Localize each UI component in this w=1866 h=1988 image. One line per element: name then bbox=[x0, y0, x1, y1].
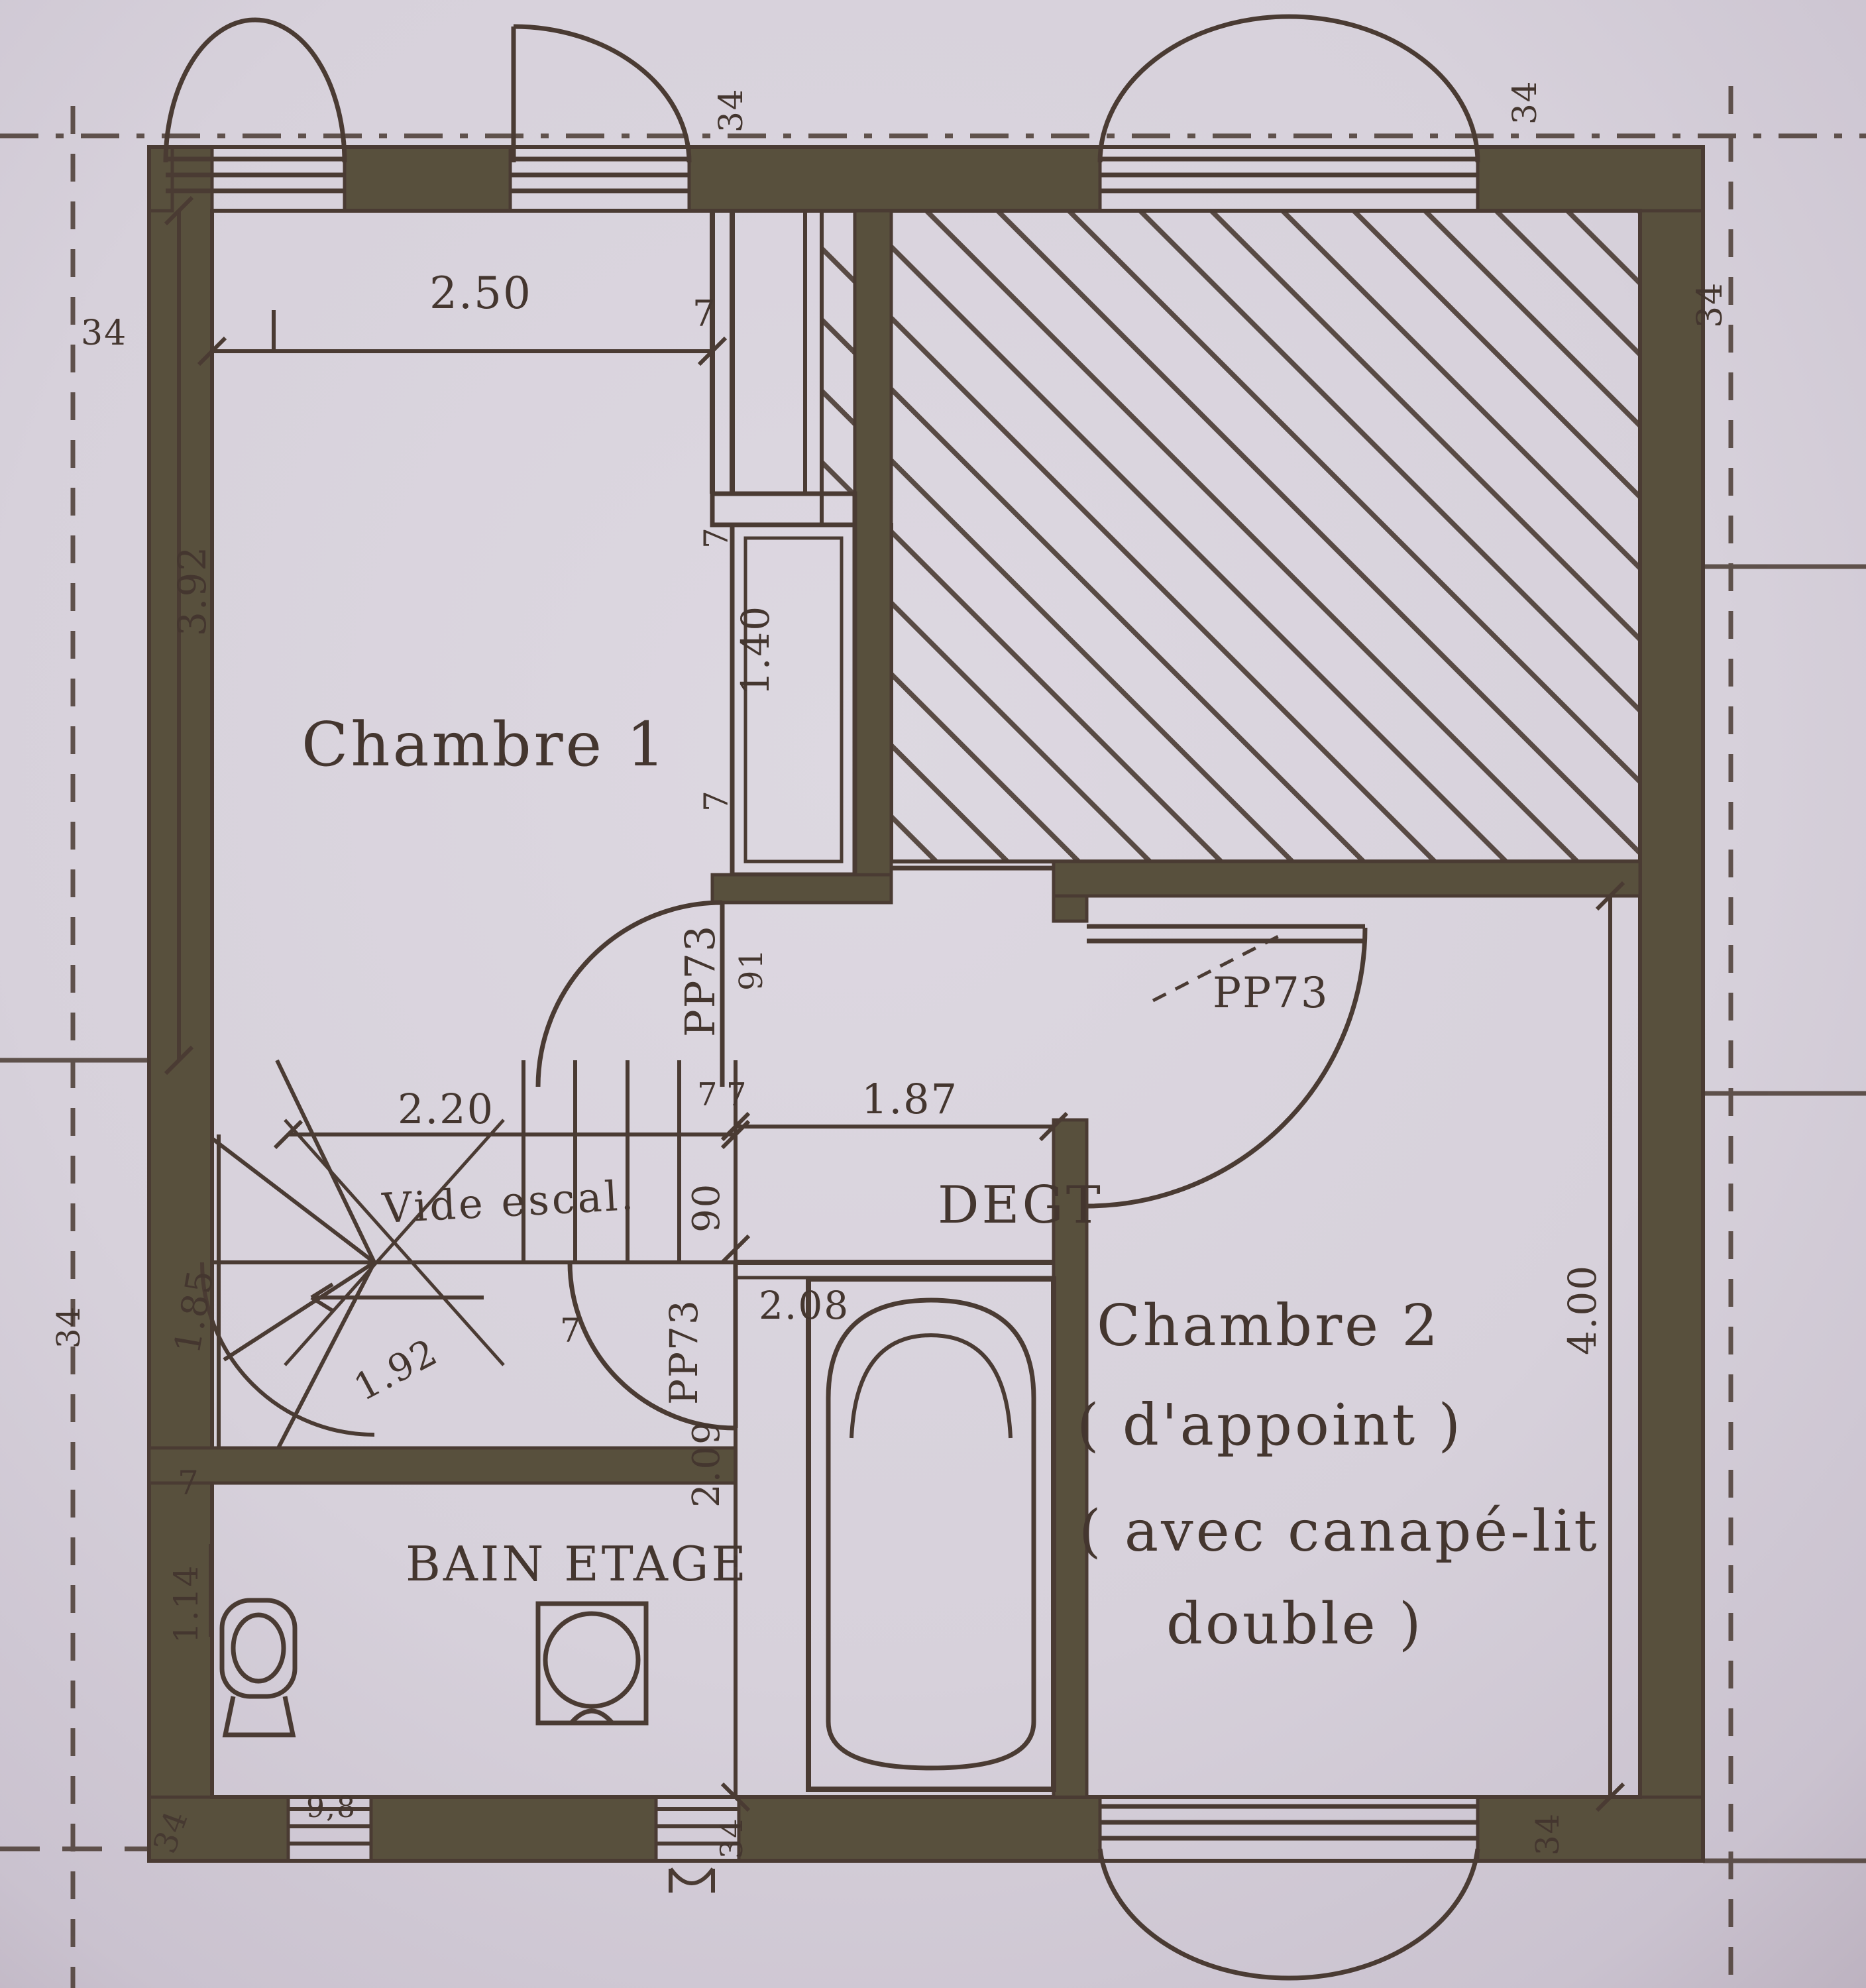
dim-7-landing-b: 7 bbox=[726, 1076, 748, 1113]
label-bain-etage: BAIN ETAGE bbox=[406, 1536, 749, 1592]
floorplan-page: Chambre 1 Chambre 2 ( d'appoint ) ( avec… bbox=[0, 0, 1866, 1988]
dim-4-00: 4.00 bbox=[1560, 1264, 1605, 1355]
label-chambre2-sub1: ( d'appoint ) bbox=[1077, 1392, 1463, 1459]
marker-34-right: 34 bbox=[1690, 282, 1730, 328]
dim-9-8: 9,8 bbox=[306, 1791, 357, 1824]
label-door-width-91: 91 bbox=[733, 948, 770, 991]
dim-7-landing-a: 7 bbox=[697, 1076, 719, 1113]
hatched-void-area bbox=[822, 211, 1640, 868]
label-pp73-chambre2: PP73 bbox=[1213, 969, 1329, 1018]
dim-1-40: 1.40 bbox=[733, 605, 778, 696]
label-chambre2-sub2: ( avec canapé-lit bbox=[1079, 1498, 1600, 1565]
label-chambre2: Chambre 2 bbox=[1097, 1293, 1441, 1359]
label-pp73-chambre1: PP73 bbox=[676, 924, 724, 1037]
marker-34-left-lower: 34 bbox=[50, 1305, 87, 1349]
floorplan-drawing: Chambre 1 Chambre 2 ( d'appoint ) ( avec… bbox=[0, 0, 1866, 1988]
dim-90: 90 bbox=[685, 1183, 728, 1233]
dim-7-top: 7 bbox=[692, 293, 716, 335]
marker-34-bottom-center: 34 bbox=[714, 1817, 749, 1859]
dim-1-14: 1.14 bbox=[167, 1565, 205, 1643]
label-chambre1: Chambre 1 bbox=[302, 709, 668, 780]
marker-34-bottom-right: 34 bbox=[1529, 1812, 1566, 1855]
marker-34-top-right: 34 bbox=[1506, 80, 1544, 125]
dim-2-50: 2.50 bbox=[429, 268, 532, 319]
dim-7-closet-bottom: 7 bbox=[697, 789, 736, 812]
dim-1-87: 1.87 bbox=[861, 1075, 958, 1123]
dim-3-92: 3.92 bbox=[170, 545, 215, 636]
dim-2-09: 2.09 bbox=[685, 1419, 728, 1508]
label-degt: DEGT bbox=[938, 1176, 1103, 1235]
label-chambre2-sub3: double ) bbox=[1166, 1591, 1424, 1657]
dim-2-08: 2.08 bbox=[759, 1283, 850, 1328]
dim-2-20: 2.20 bbox=[398, 1085, 494, 1133]
dim-7-stairs: 7 bbox=[560, 1311, 582, 1350]
marker-34-top: 34 bbox=[712, 87, 750, 133]
dim-7-bain: 7 bbox=[178, 1464, 200, 1502]
marker-34-left: 34 bbox=[81, 313, 127, 353]
dim-7-closet-top: 7 bbox=[697, 526, 736, 549]
label-pp73-bain: PP73 bbox=[661, 1299, 706, 1405]
